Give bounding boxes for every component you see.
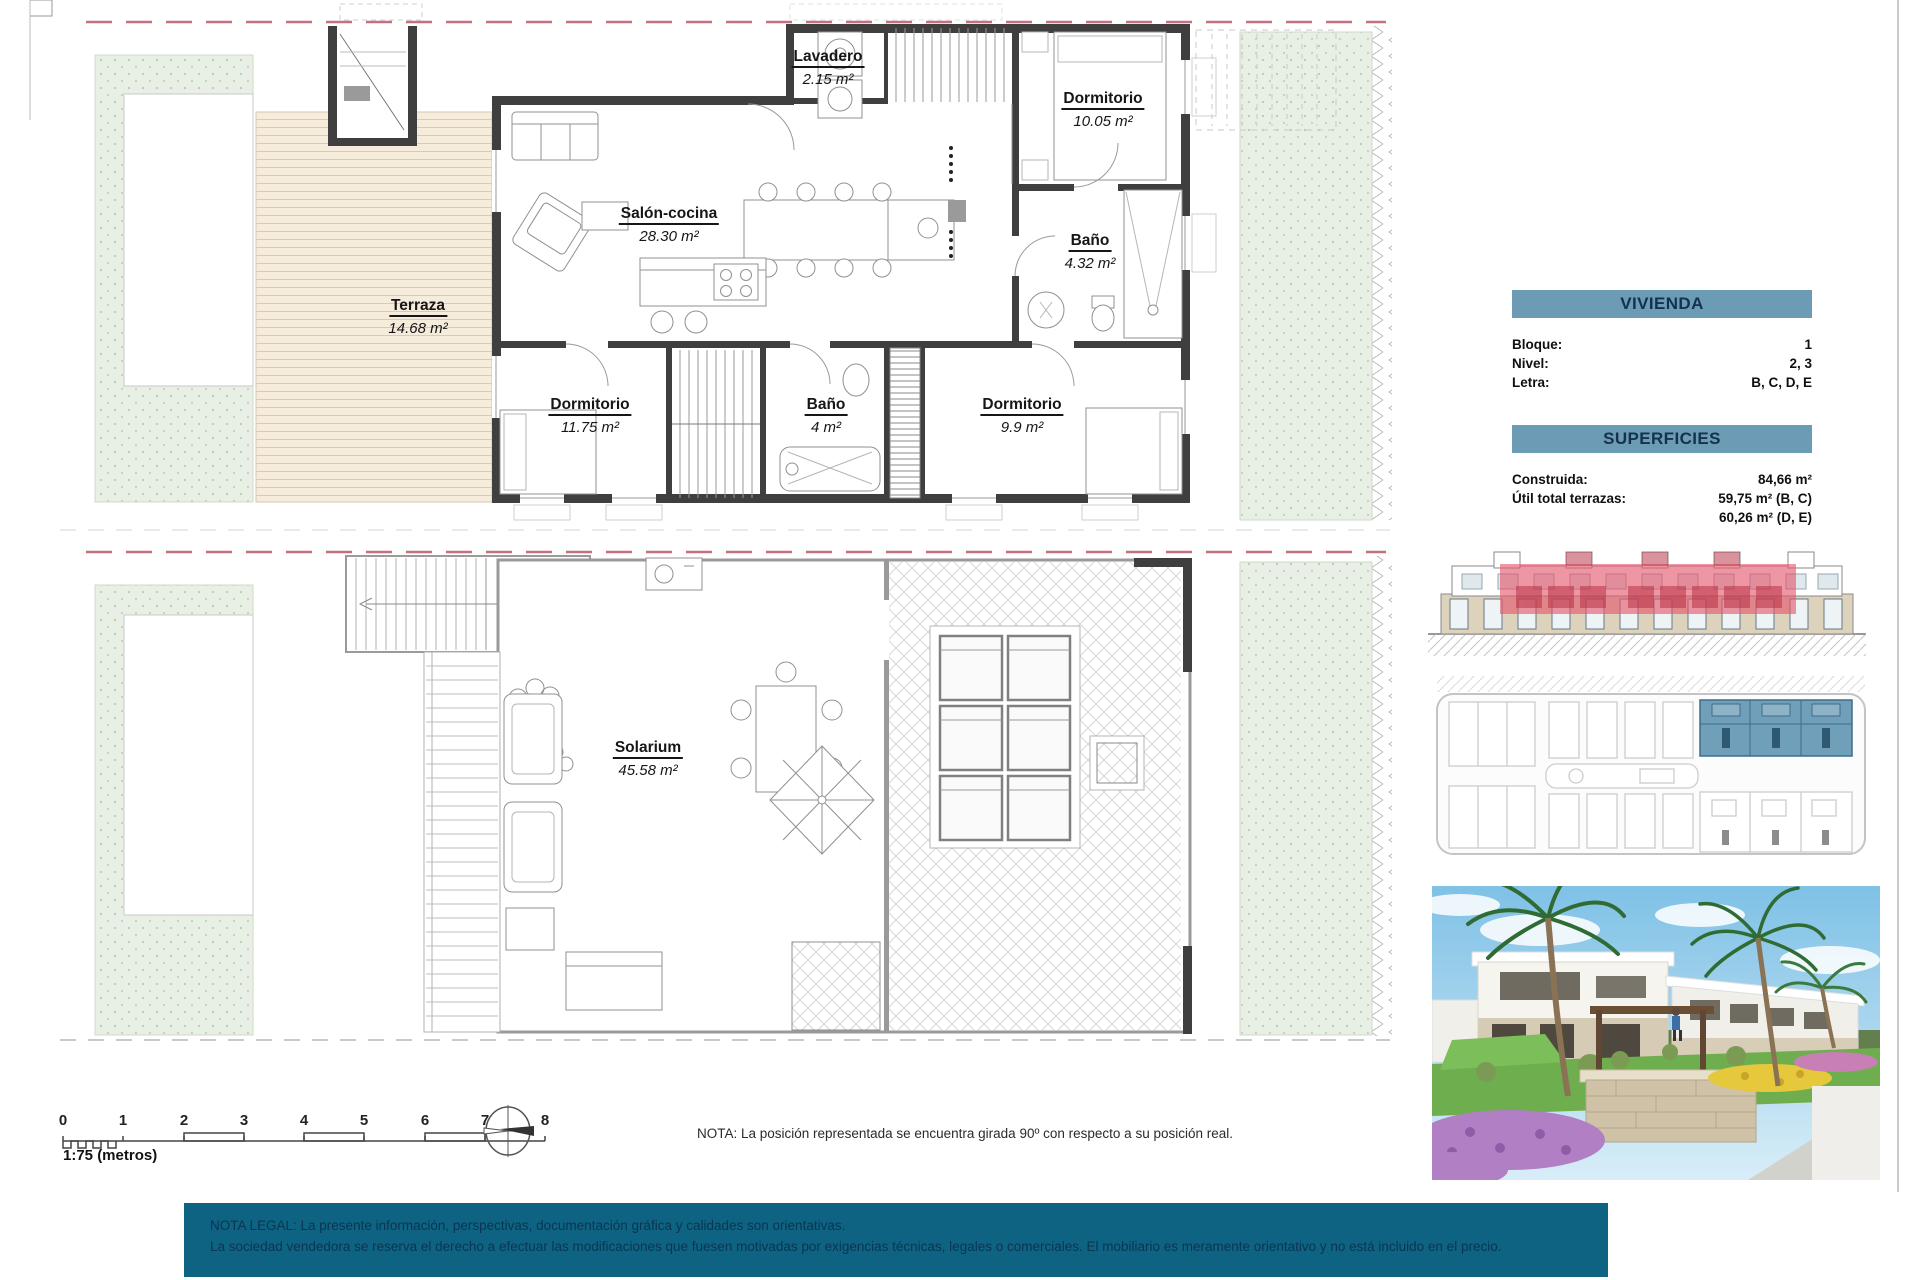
row-values: 59,75 m² (B, C) 60,26 m² (D, E) (1718, 489, 1812, 527)
plan-sheet: Lavadero 2.15 m² Dormitorio 10.05 m² Sal… (0, 0, 1920, 1280)
elevation-drawing (1428, 552, 1866, 656)
row-value: 2, 3 (1789, 354, 1812, 373)
room-name: Solarium (613, 739, 683, 759)
room-name: Salón-cocina (619, 205, 719, 225)
room-area: 10.05 m² (1061, 113, 1144, 130)
room-name: Lavadero (792, 48, 865, 68)
room-label-solarium: Solarium 45.58 m² (613, 739, 683, 779)
scale-tick-7: 7 (481, 1112, 489, 1129)
room-label-lavadero: Lavadero 2.15 m² (792, 48, 865, 88)
room-area: 45.58 m² (613, 762, 683, 779)
room-name: Baño (1069, 232, 1112, 252)
legal-footer-line1: NOTA LEGAL: La presente información, per… (210, 1216, 1588, 1237)
rotation-note: NOTA: La posición representada se encuen… (697, 1126, 1233, 1141)
room-area: 11.75 m² (548, 419, 631, 436)
render-image (1388, 862, 1880, 1188)
side-deck (424, 652, 500, 1032)
stairs-lower (672, 350, 760, 498)
row-value: 1 (1804, 335, 1812, 354)
vivienda-row-nivel: Nivel: 2, 3 (1512, 354, 1812, 373)
room-label-bano-2: Baño 4 m² (805, 396, 848, 436)
scale-bar (63, 1133, 545, 1148)
room-label-dormitorio-2: Dormitorio 11.75 m² (548, 396, 631, 436)
room-label-salon-cocina: Salón-cocina 28.30 m² (619, 205, 719, 245)
scale-tick-1: 1 (119, 1112, 127, 1129)
drawing-canvas (0, 0, 1920, 1280)
room-name: Dormitorio (1061, 90, 1144, 110)
scale-tick-2: 2 (180, 1112, 188, 1129)
scale-tick-8: 8 (541, 1112, 549, 1129)
vivienda-row-letra: Letra: B, C, D, E (1512, 373, 1812, 392)
vivienda-row-bloque: Bloque: 1 (1512, 335, 1812, 354)
north-compass-icon (484, 1105, 534, 1157)
vivienda-panel: VIVIENDA Bloque: 1 Nivel: 2, 3 Letra: B,… (1512, 290, 1812, 392)
row-label: Letra: (1512, 373, 1550, 392)
room-area: 14.68 m² (388, 320, 447, 337)
room-name: Terraza (389, 297, 447, 317)
row-value: B, C, D, E (1751, 373, 1812, 392)
site-plan-blue-block (1700, 700, 1852, 756)
room-label-dormitorio-1: Dormitorio 10.05 m² (1061, 90, 1144, 130)
scale-tick-6: 6 (421, 1112, 429, 1129)
site-plan-drawing (1437, 676, 1865, 854)
scale-caption: 1:75 (metros) (63, 1147, 157, 1164)
row-label: Nivel: (1512, 354, 1549, 373)
row-label: Construida: (1512, 470, 1588, 489)
superficies-row-construida: Construida: 84,66 m² (1512, 470, 1812, 489)
room-area: 9.9 m² (980, 419, 1063, 436)
solarium-plan-drawing (60, 552, 1392, 1040)
legal-footer: NOTA LEGAL: La presente información, per… (184, 1203, 1608, 1277)
superficies-panel: SUPERFICIES Construida: 84,66 m² Útil to… (1512, 425, 1812, 527)
row-label: Útil total terrazas: (1512, 489, 1626, 527)
legal-footer-line2: La sociedad vendedora se reserva el dere… (210, 1237, 1588, 1258)
room-area: 2.15 m² (792, 71, 865, 88)
room-area: 4.32 m² (1065, 255, 1116, 272)
util-value-bc: 59,75 m² (B, C) (1718, 489, 1812, 508)
room-area: 28.30 m² (619, 228, 719, 245)
row-value: 84,66 m² (1758, 470, 1812, 489)
util-value-de: 60,26 m² (D, E) (1718, 508, 1812, 527)
room-name: Dormitorio (548, 396, 631, 416)
room-name: Dormitorio (980, 396, 1063, 416)
floor-plan-drawing (60, 4, 1392, 530)
scale-tick-0: 0 (59, 1112, 67, 1129)
room-label-dormitorio-3: Dormitorio 9.9 m² (980, 396, 1063, 436)
room-label-terraza: Terraza 14.68 m² (388, 297, 447, 337)
vivienda-panel-title: VIVIENDA (1512, 290, 1812, 318)
room-area: 4 m² (805, 419, 848, 436)
scale-tick-4: 4 (300, 1112, 308, 1129)
superficies-row-util: Útil total terrazas: 59,75 m² (B, C) 60,… (1512, 489, 1812, 527)
entry-stairs (328, 24, 417, 146)
room-label-bano-1: Baño 4.32 m² (1065, 232, 1116, 272)
row-label: Bloque: (1512, 335, 1562, 354)
scale-tick-3: 3 (240, 1112, 248, 1129)
superficies-panel-title: SUPERFICIES (1512, 425, 1812, 453)
stairs-upper (896, 28, 1012, 184)
wardrobe (890, 348, 920, 498)
scale-tick-5: 5 (360, 1112, 368, 1129)
room-name: Baño (805, 396, 848, 416)
